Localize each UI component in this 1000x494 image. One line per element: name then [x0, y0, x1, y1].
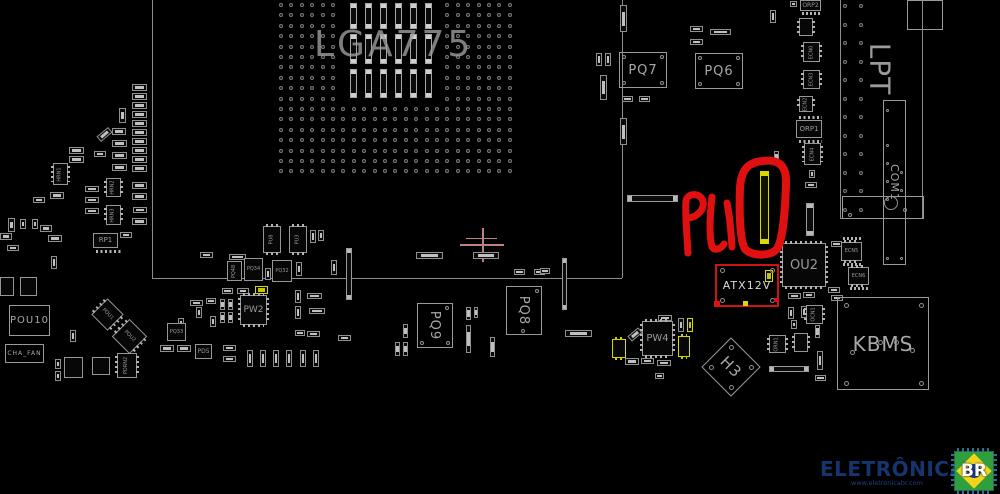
watermark-brand-suffix: BR — [955, 452, 993, 490]
watermark: ELETRÔNICA www.eletronicabr.com BR — [820, 448, 998, 494]
chip-pins-bottom-icon — [957, 490, 991, 494]
pl1-circle-mark — [740, 161, 786, 255]
chip-pins-right-icon — [993, 454, 997, 488]
pl1-handwriting — [686, 161, 786, 255]
watermark-brand: ELETRÔNICA — [820, 458, 954, 480]
hand-drawn-annotation — [0, 0, 1000, 494]
pcb-boardview-canvas: LGA775 PL1 ELETRÔNICA www.eletronicabr.c… — [0, 0, 1000, 494]
watermark-text: ELETRÔNICA www.eletronicabr.com — [820, 458, 954, 487]
watermark-chip-logo-icon: BR — [954, 451, 994, 491]
